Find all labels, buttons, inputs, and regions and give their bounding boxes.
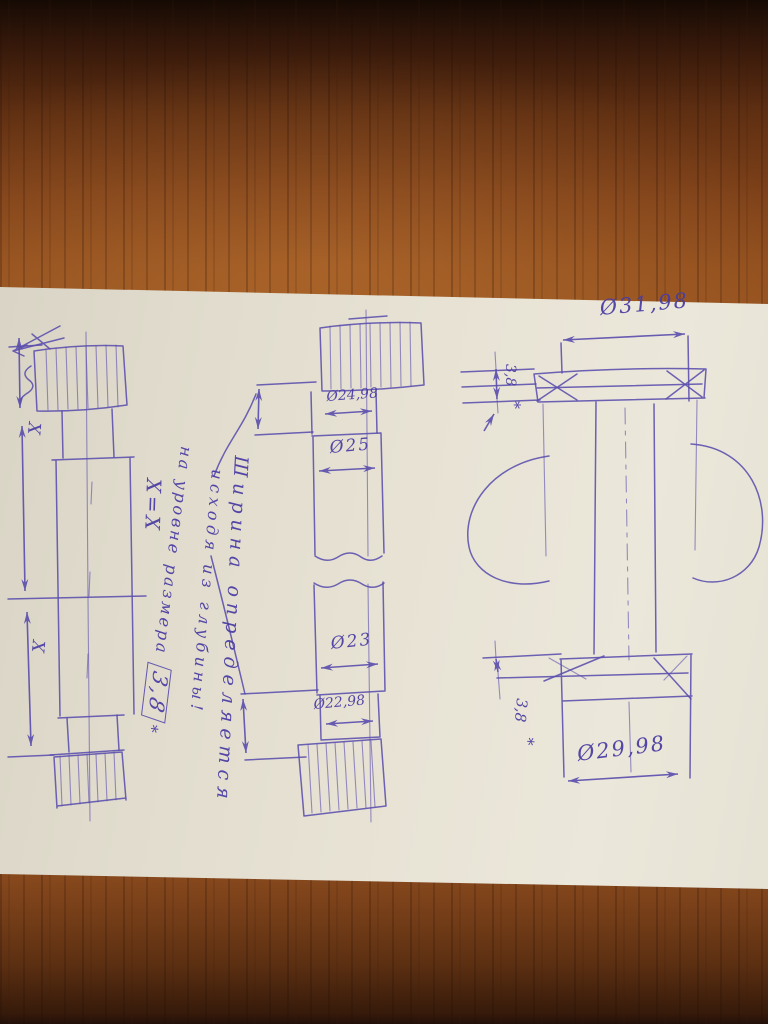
dim-label-dia-3: Ø23: [330, 632, 373, 653]
dim-label-x-lower: X: [28, 640, 46, 654]
equality-note: X=X: [142, 478, 164, 533]
left-shaft-drawing: [8, 326, 146, 821]
dim-label-thk-top: 3,8: [503, 364, 517, 386]
footnote-mark-thk-bottom: *: [519, 737, 536, 746]
ink-sketch: [0, 0, 768, 1024]
dim-label-dia-2: Ø25: [329, 436, 372, 457]
boxed-dimension-value: 3,8: [141, 661, 172, 723]
dim-label-x-upper: X: [24, 422, 42, 436]
photo-of-hand-sketch: Ø31,98 3,8 * Ø29,98 3,8 * Ø24,98 Ø25 Ø23…: [0, 0, 768, 1024]
footnote-mark-note: *: [142, 723, 162, 736]
dim-label-thk-bottom: 3,8: [512, 698, 529, 723]
dim-label-dia-1: Ø24,98: [326, 386, 378, 404]
footnote-mark-thk-top: *: [506, 401, 522, 409]
